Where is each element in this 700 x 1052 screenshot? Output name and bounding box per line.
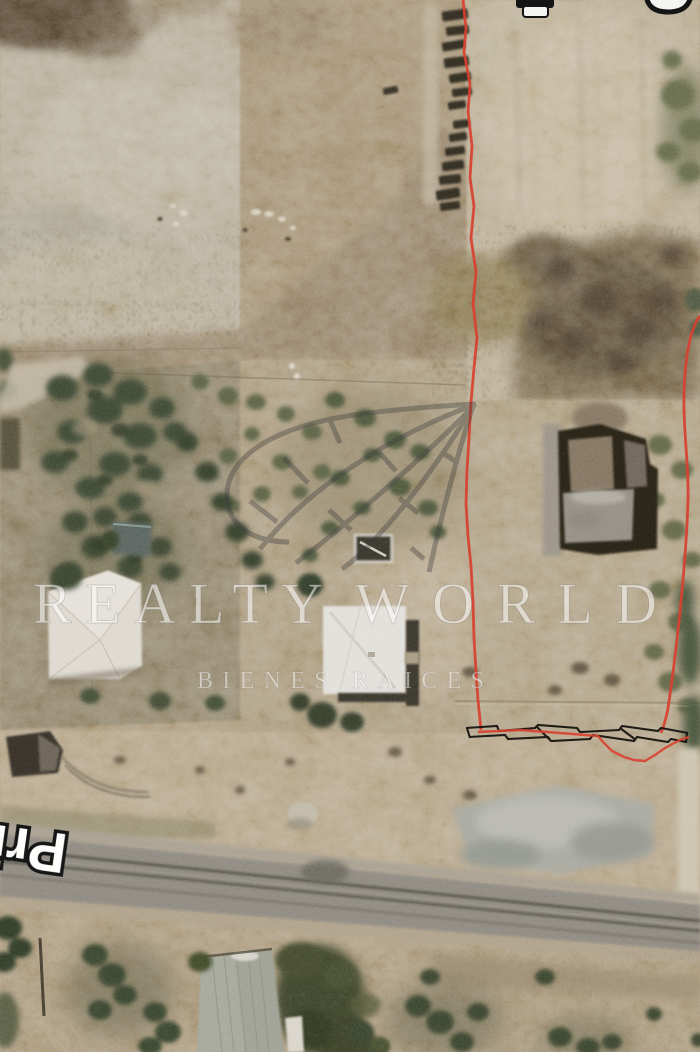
svg-text:REALTY: REALTY xyxy=(33,571,329,636)
svg-text:Pri: Pri xyxy=(0,812,71,886)
svg-text:WORLD: WORLD xyxy=(355,571,663,636)
svg-text:BIENES RAICES: BIENES RAICES xyxy=(197,668,493,694)
